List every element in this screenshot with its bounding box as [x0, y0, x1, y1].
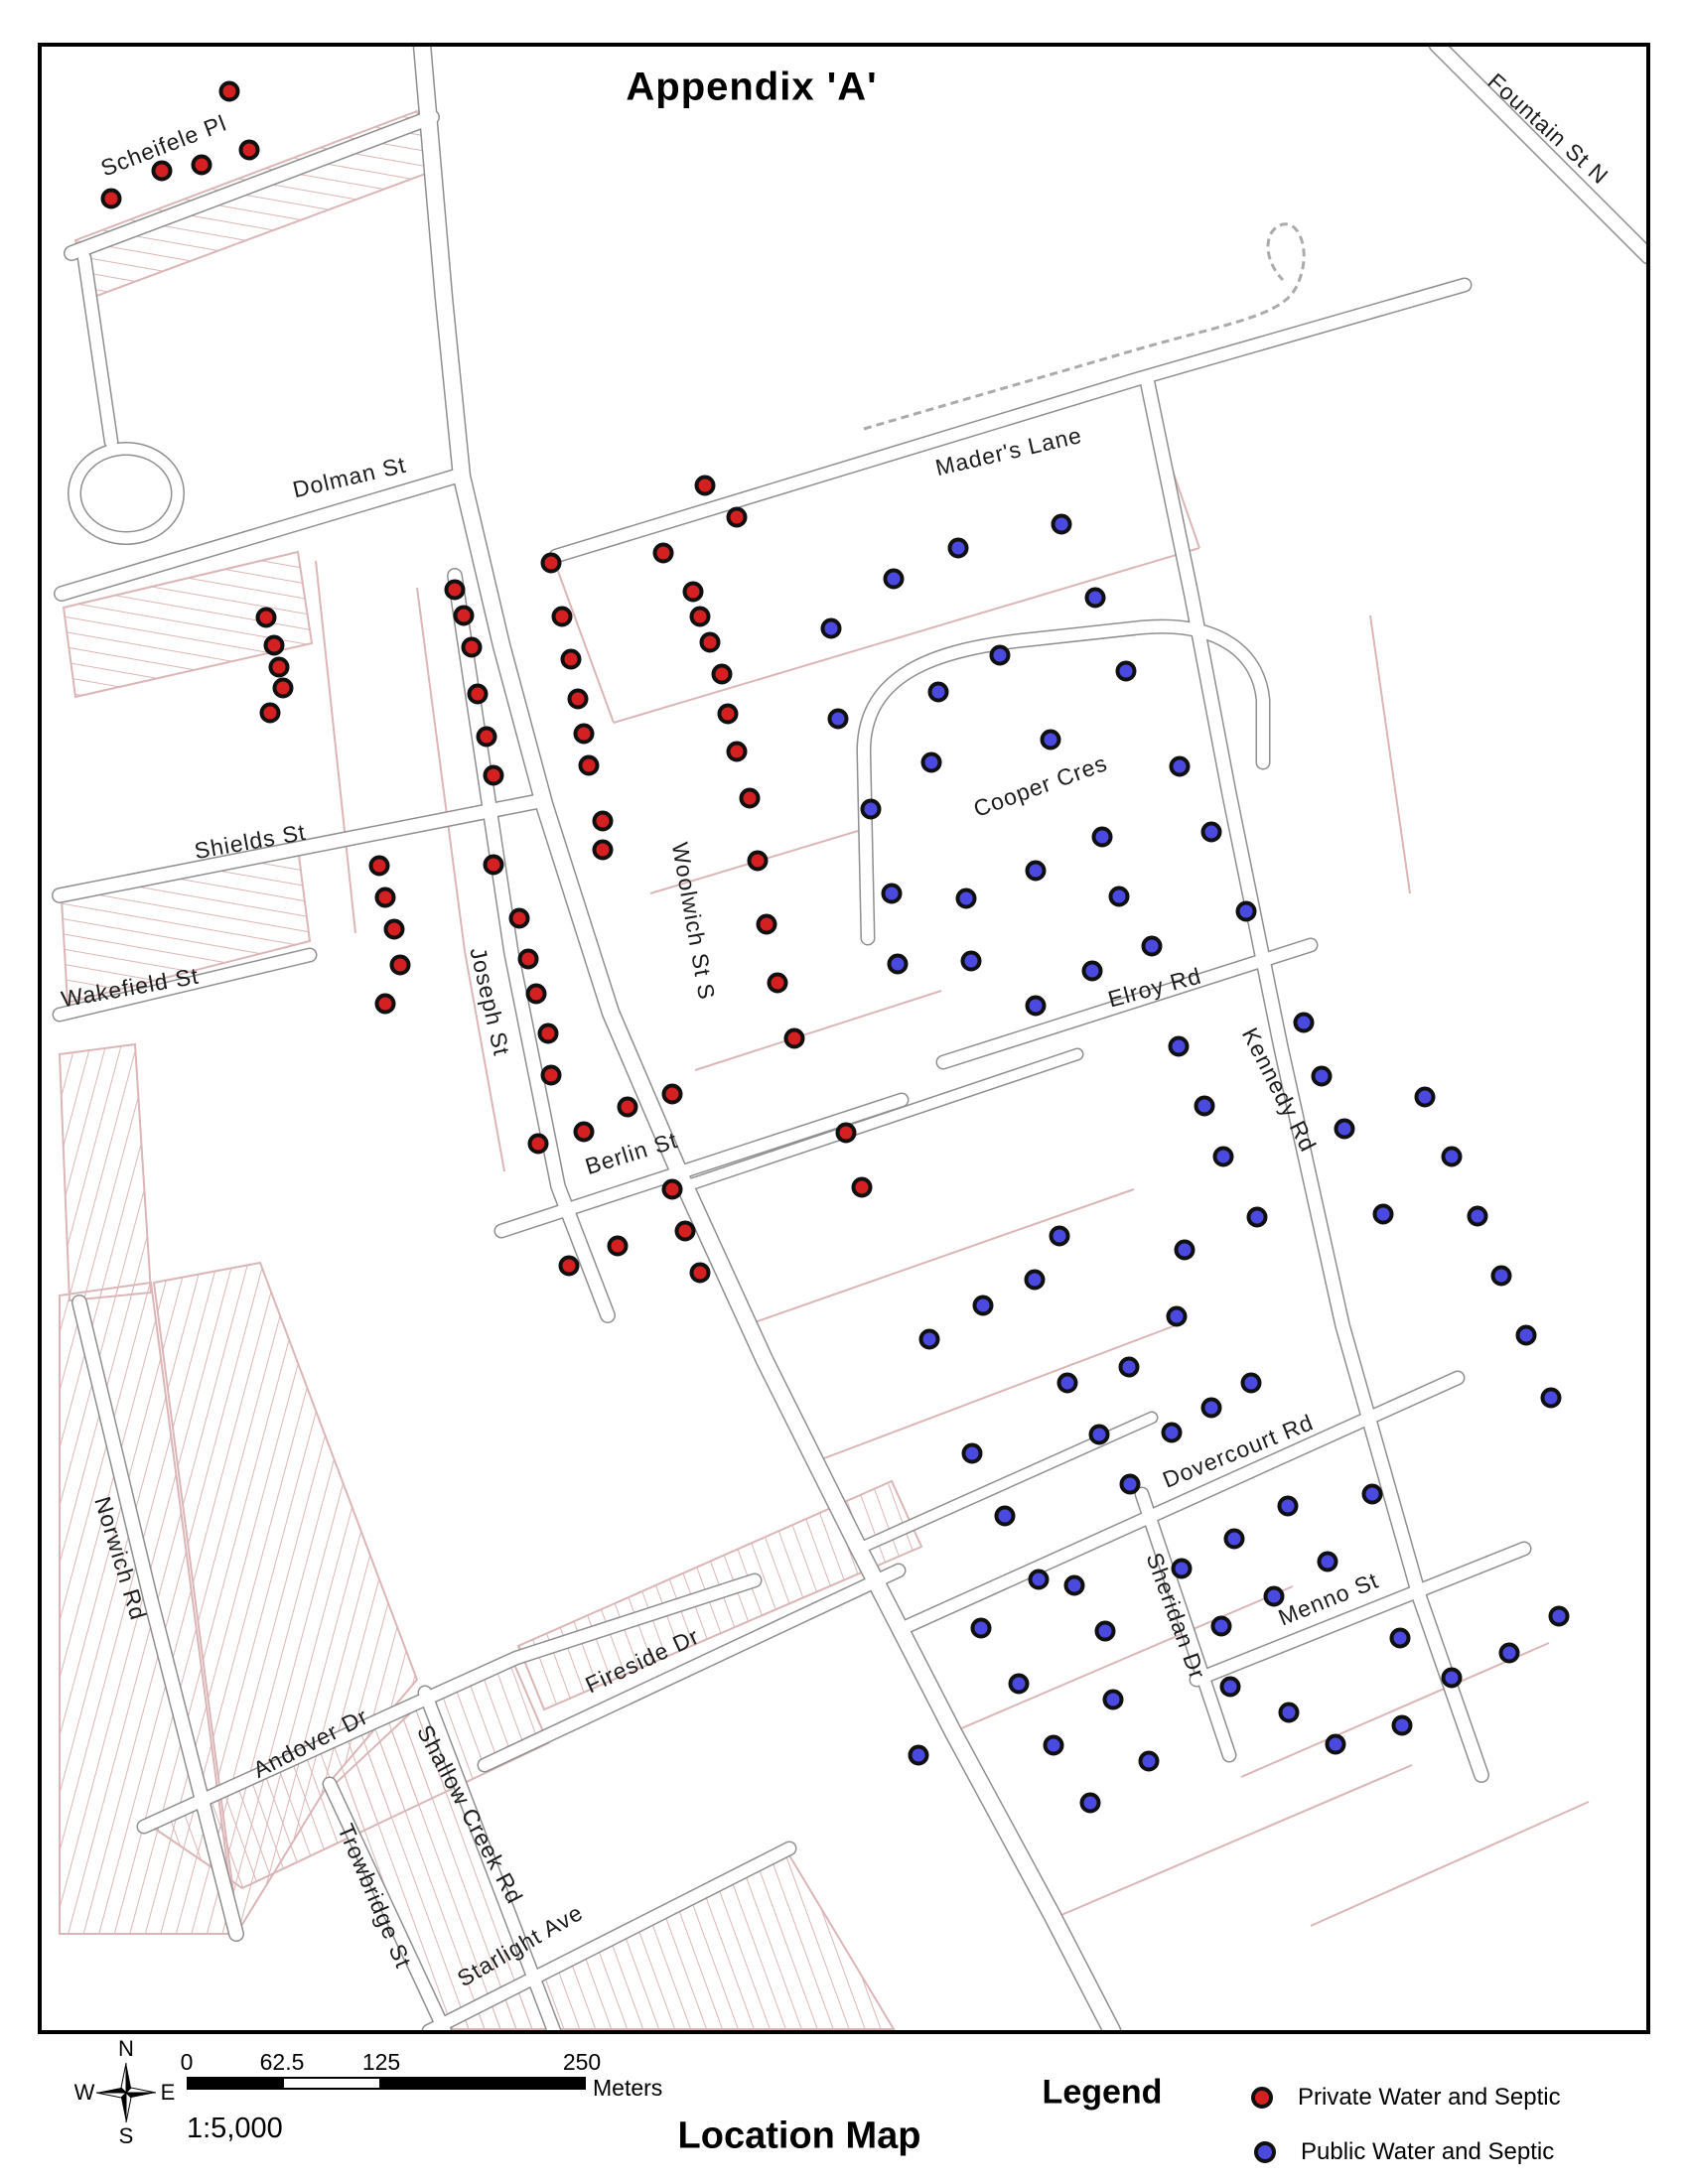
public-water-septic-dot [882, 884, 903, 904]
public-water-septic-dot [1312, 1066, 1333, 1087]
public-water-septic-dot [1415, 1087, 1436, 1108]
public-water-septic-dot [884, 569, 905, 590]
parcel-line [1055, 1765, 1412, 1918]
private-water-septic-dot [256, 608, 277, 628]
private-water-septic-dot [568, 689, 589, 710]
private-water-septic-dot [152, 161, 173, 182]
public-water-septic-dot [1278, 1496, 1299, 1517]
public-water-septic-dot [1089, 1425, 1110, 1445]
private-water-septic-dot [700, 632, 721, 653]
public-water-septic-dot [1442, 1668, 1463, 1689]
private-water-septic-dot [219, 81, 240, 102]
private-water-septic-dot [538, 1024, 559, 1044]
public-water-septic-dot [1026, 996, 1047, 1017]
private-water-septic-dot [748, 851, 769, 872]
public-water-septic-dot [1220, 1677, 1241, 1698]
public-water-septic-dot [1095, 1621, 1116, 1642]
private-water-septic-dot [712, 664, 733, 685]
public-water-septic-dot [1201, 1398, 1222, 1419]
legend-dot-icon [1254, 2141, 1276, 2163]
road-maders-lane [556, 285, 1465, 556]
road-menno-st [1196, 1549, 1524, 1680]
public-water-septic-dot [1169, 1036, 1190, 1057]
private-water-septic-dot [528, 1134, 549, 1155]
public-water-septic-dot [1279, 1703, 1300, 1723]
public-water-septic-dot [1516, 1325, 1537, 1346]
scale-bar-segment [282, 2077, 381, 2090]
public-water-septic-dot [956, 888, 977, 909]
parcel-line [695, 991, 941, 1070]
public-water-septic-dot [961, 951, 982, 972]
public-water-septic-dot [1390, 1628, 1411, 1649]
private-water-septic-dot [690, 607, 711, 627]
private-water-septic-dot [784, 1028, 805, 1049]
private-water-septic-dot [690, 1263, 711, 1284]
parcel-line [417, 588, 504, 1171]
private-water-septic-dot [757, 914, 777, 935]
legend-dot-icon [1251, 2087, 1273, 2109]
public-water-septic-dot [962, 1443, 983, 1464]
public-water-septic-dot [1392, 1715, 1413, 1736]
public-water-septic-dot [861, 799, 882, 820]
parcel-line [316, 561, 355, 933]
public-water-septic-dot [1442, 1147, 1463, 1167]
page-title: Appendix 'A' [626, 66, 877, 110]
public-water-septic-dot [1499, 1643, 1520, 1664]
private-water-septic-dot [273, 678, 294, 699]
private-water-septic-dot [260, 703, 281, 724]
private-water-septic-dot [375, 887, 396, 908]
public-water-septic-dot [1103, 1690, 1124, 1710]
parcel-line [1370, 615, 1410, 893]
compass-west-label: W [74, 2080, 95, 2106]
private-water-septic-dot [468, 684, 489, 705]
private-water-septic-dot [518, 949, 539, 970]
legend-item-label: Private Water and Septic [1298, 2084, 1561, 2112]
road-mid-connector [685, 1054, 1077, 1186]
public-water-septic-dot [1167, 1306, 1188, 1327]
private-water-septic-dot [836, 1123, 857, 1144]
public-water-septic-dot [990, 645, 1011, 666]
private-water-septic-dot [509, 908, 530, 929]
public-water-septic-dot [1247, 1207, 1268, 1228]
private-water-septic-dot [593, 811, 614, 832]
private-water-septic-dot [384, 919, 405, 940]
scale-bar-tick-62.5: 62.5 [260, 2049, 305, 2076]
parcel-line [816, 1322, 1184, 1461]
public-water-septic-dot [1264, 1586, 1285, 1607]
scale-bar-tick-250: 250 [563, 2049, 601, 2076]
public-water-septic-dot [973, 1296, 994, 1316]
public-water-septic-dot [1139, 1751, 1160, 1772]
public-water-septic-dot [1029, 1570, 1050, 1590]
private-water-septic-dot [269, 657, 290, 678]
public-water-septic-dot [971, 1618, 992, 1639]
private-water-septic-dot [462, 637, 483, 658]
public-water-septic-dot [1044, 1735, 1064, 1756]
private-water-septic-dot [477, 727, 497, 748]
public-water-septic-dot [1085, 588, 1106, 609]
private-water-septic-dot [852, 1177, 873, 1198]
private-water-septic-dot [526, 984, 547, 1005]
public-water-septic-dot [1241, 1373, 1262, 1394]
public-water-septic-dot [888, 954, 909, 975]
public-water-septic-dot [1162, 1423, 1183, 1443]
scale-bar-tick-125: 125 [362, 2049, 400, 2076]
scale-bar-segment [187, 2077, 282, 2090]
compass-south-label: S [119, 2123, 134, 2149]
private-water-septic-dot [695, 476, 716, 496]
public-water-septic-dot [1119, 1357, 1140, 1378]
private-water-septic-dot [390, 955, 411, 976]
private-water-septic-dot [101, 189, 122, 209]
private-water-septic-dot [541, 553, 562, 574]
public-water-septic-dot [1318, 1552, 1338, 1572]
public-water-septic-dot [1224, 1529, 1245, 1550]
public-water-septic-dot [1050, 1226, 1070, 1247]
public-water-septic-dot [1120, 1474, 1141, 1495]
compass-north-label: N [118, 2036, 134, 2062]
public-water-septic-dot [1175, 1240, 1196, 1261]
public-water-septic-dot [1170, 756, 1191, 777]
public-water-septic-dot [948, 538, 969, 559]
public-water-septic-dot [1092, 827, 1113, 848]
private-water-septic-dot [484, 855, 504, 876]
compass-star-icon [94, 2061, 158, 2124]
public-water-septic-dot [921, 752, 942, 773]
public-water-septic-dot [1294, 1013, 1315, 1033]
parcel-line [755, 1189, 1134, 1322]
private-water-septic-dot [574, 724, 595, 745]
public-water-septic-dot [1082, 961, 1103, 982]
road-scheifele-loop [74, 449, 178, 538]
private-water-septic-dot [675, 1221, 696, 1242]
road-fountain-st-n [1437, 45, 1648, 256]
private-water-septic-dot [559, 1256, 580, 1277]
private-water-septic-dot [608, 1236, 629, 1257]
public-water-septic-dot [1373, 1204, 1394, 1225]
private-water-septic-dot [653, 543, 674, 564]
public-water-septic-dot [1541, 1388, 1562, 1409]
public-water-septic-dot [1549, 1606, 1570, 1627]
public-water-septic-dot [909, 1745, 929, 1766]
legend-item-label: Public Water and Septic [1301, 2138, 1554, 2166]
public-water-septic-dot [1109, 887, 1130, 907]
private-water-septic-dot [484, 765, 504, 786]
public-water-septic-dot [919, 1329, 940, 1350]
private-water-septic-dot [192, 155, 212, 176]
scale-bar-tick-0: 0 [181, 2049, 194, 2076]
parcel-block [60, 1044, 151, 1300]
public-water-septic-dot [1491, 1266, 1512, 1287]
public-water-septic-dot [1468, 1206, 1488, 1227]
public-water-septic-dot [1009, 1674, 1030, 1695]
public-water-septic-dot [1025, 1270, 1046, 1291]
compass-east-label: E [161, 2080, 176, 2106]
private-water-septic-dot [662, 1179, 683, 1200]
map-canvas [0, 0, 1688, 2184]
public-water-septic-dot [1326, 1734, 1346, 1755]
private-water-septic-dot [662, 1084, 683, 1105]
legend-title: Legend [1043, 2074, 1163, 2113]
public-water-septic-dot [1080, 1793, 1101, 1814]
private-water-septic-dot [369, 856, 390, 877]
public-water-septic-dot [1201, 822, 1222, 843]
private-water-septic-dot [618, 1097, 638, 1118]
public-water-septic-dot [1213, 1147, 1234, 1167]
scale-ratio-text: 1:5,000 [187, 2113, 283, 2145]
private-water-septic-dot [593, 840, 614, 861]
parcel-line [1311, 1802, 1589, 1926]
scale-bar-unit: Meters [593, 2075, 662, 2102]
public-water-septic-dot [995, 1506, 1016, 1527]
public-water-septic-dot [1142, 936, 1163, 957]
private-water-septic-dot [683, 582, 704, 603]
location-map-page: Appendix 'A' Scheifele PlDolman StMader'… [0, 0, 1688, 2184]
public-water-septic-dot [1195, 1096, 1215, 1117]
private-water-septic-dot [375, 994, 396, 1015]
public-water-septic-dot [1064, 1575, 1085, 1596]
private-water-septic-dot [768, 973, 788, 994]
public-water-septic-dot [1335, 1119, 1355, 1140]
private-water-septic-dot [454, 606, 475, 626]
private-water-septic-dot [718, 704, 739, 725]
private-water-septic-dot [727, 742, 748, 762]
private-water-septic-dot [574, 1122, 595, 1143]
private-water-septic-dot [579, 755, 600, 776]
private-water-septic-dot [552, 607, 573, 627]
map-caption: Location Map [678, 2116, 921, 2158]
private-water-septic-dot [239, 140, 260, 161]
private-water-septic-dot [445, 580, 466, 601]
private-water-septic-dot [264, 635, 285, 656]
private-water-septic-dot [561, 649, 582, 670]
public-water-septic-dot [1362, 1484, 1383, 1505]
public-water-septic-dot [1041, 730, 1061, 751]
private-water-septic-dot [740, 788, 761, 809]
private-water-septic-dot [541, 1065, 562, 1086]
public-water-septic-dot [1116, 661, 1137, 682]
public-water-septic-dot [1211, 1616, 1232, 1637]
public-water-septic-dot [1052, 514, 1072, 535]
public-water-septic-dot [1026, 861, 1047, 882]
public-water-septic-dot [1172, 1559, 1193, 1579]
public-water-septic-dot [821, 618, 842, 639]
public-water-septic-dot [928, 682, 949, 703]
scale-bar-segment [381, 2077, 586, 2090]
public-water-septic-dot [1236, 901, 1257, 922]
public-water-septic-dot [828, 709, 849, 730]
private-water-septic-dot [727, 507, 748, 528]
public-water-septic-dot [1057, 1373, 1078, 1394]
